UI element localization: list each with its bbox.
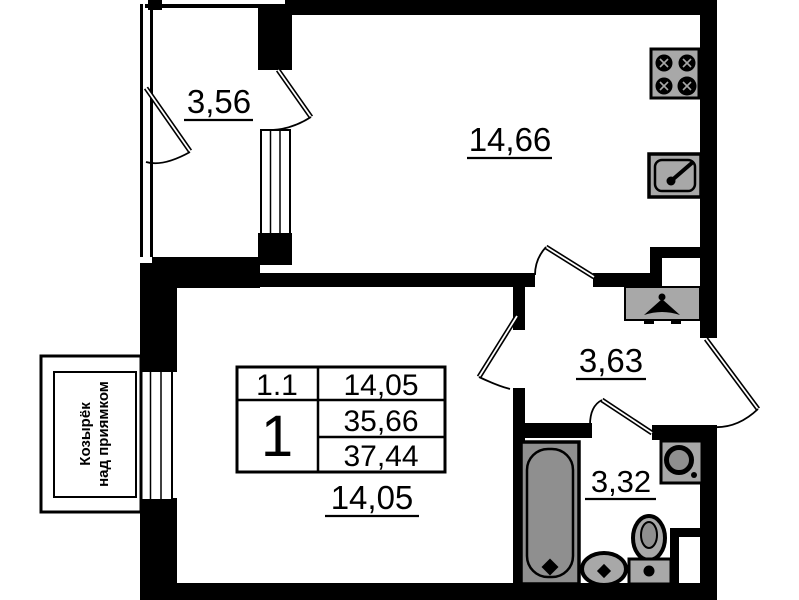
wall-balcony-divider-lower	[258, 233, 292, 265]
balcony-window	[261, 130, 290, 234]
balcony-rail-inner	[150, 4, 153, 257]
stove-icon	[651, 49, 699, 98]
floor-plan-canvas: Козырёк над приямком	[0, 0, 799, 600]
apartment-info-table: 1.1 14,05 1 35,66 37,44	[237, 367, 445, 473]
wash-basin-icon	[582, 553, 626, 585]
balcony-rail-top	[145, 4, 290, 8]
kitchen-area-label: 14,66	[469, 121, 552, 158]
wall-top	[285, 0, 717, 15]
canopy-label-line1: Козырёк	[77, 402, 94, 466]
wall-left-lower	[140, 498, 177, 600]
table-unit-number: 1.1	[256, 369, 298, 402]
bathroom-area-label: 3,32	[591, 464, 651, 499]
table-area-total: 37,44	[343, 440, 418, 473]
wall-shaft-left	[650, 247, 662, 287]
canopy-label-line2: над приямком	[95, 381, 112, 487]
floor-plan: Козырёк над приямком	[0, 0, 799, 600]
wall-niche-top	[670, 528, 702, 537]
table-area-living-total: 35,66	[343, 405, 418, 438]
living-window	[140, 371, 172, 500]
bathtub-icon	[521, 442, 579, 584]
table-living-area: 14,05	[343, 369, 418, 402]
wall-bottom	[140, 583, 717, 600]
balcony-area-label: 3,56	[187, 83, 251, 120]
wall-bath-top-right	[652, 425, 702, 440]
kitchen-sink-icon	[649, 154, 701, 197]
wardrobe-icon	[625, 287, 700, 324]
table-rooms-count: 1	[261, 404, 293, 469]
canopy-box: Козырёк над приямком	[41, 356, 141, 512]
balcony-rail-outer	[140, 4, 143, 257]
wall-bath-top-left	[513, 423, 592, 438]
hallway-area-label: 3,63	[579, 342, 643, 379]
washing-machine-icon	[661, 441, 702, 483]
wall-balcony-divider-upper	[258, 5, 292, 70]
living-area-label: 14,05	[331, 479, 414, 516]
wall-hall-top	[593, 273, 653, 287]
wall-balcony-bottom	[152, 257, 260, 288]
